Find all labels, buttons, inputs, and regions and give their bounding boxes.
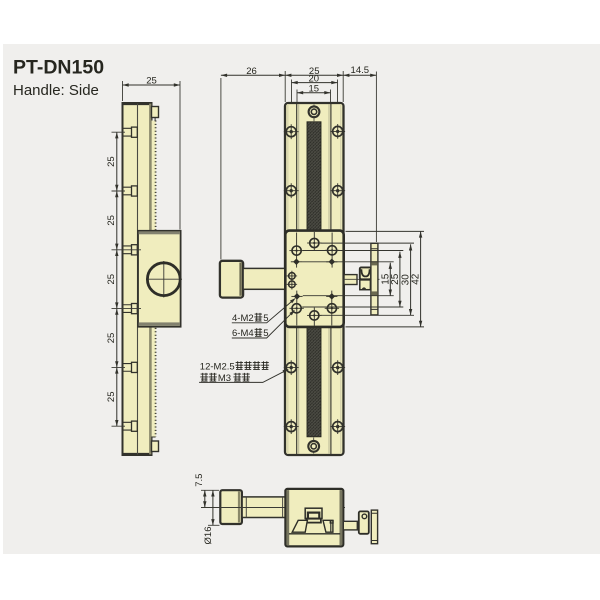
svg-text:25: 25 xyxy=(106,215,117,226)
svg-text:26: 26 xyxy=(246,66,257,77)
svg-text:25: 25 xyxy=(106,392,117,403)
svg-text:7.5: 7.5 xyxy=(194,474,205,487)
svg-text:25: 25 xyxy=(390,273,401,285)
svg-text:15: 15 xyxy=(309,84,320,95)
svg-text:25: 25 xyxy=(106,333,117,344)
svg-text:PT-DN150: PT-DN150 xyxy=(13,57,104,79)
svg-text:25: 25 xyxy=(106,274,117,285)
svg-text:Ø16: Ø16 xyxy=(203,527,214,545)
svg-text:14.5: 14.5 xyxy=(351,65,370,76)
svg-text:25: 25 xyxy=(146,75,157,86)
svg-text:25: 25 xyxy=(106,156,117,167)
svg-text:42: 42 xyxy=(411,273,422,285)
svg-text:12-M2.5: 12-M2.5 xyxy=(200,361,235,372)
svg-text:Handle: Side: Handle: Side xyxy=(13,82,99,99)
